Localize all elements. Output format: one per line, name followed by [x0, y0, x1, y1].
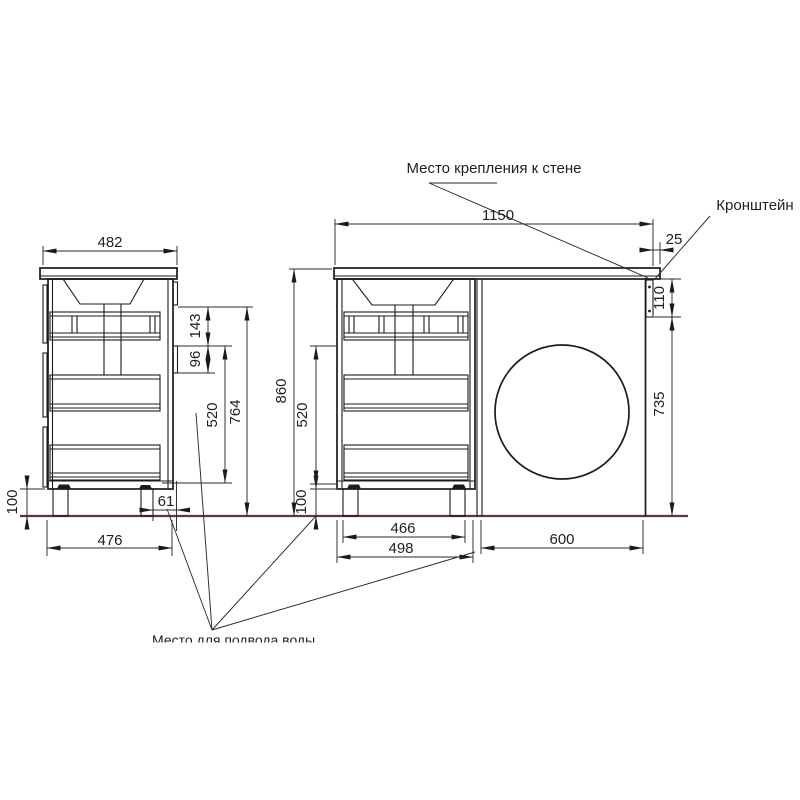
side-drawer-top — [50, 312, 160, 340]
front-sink-bowl — [353, 280, 453, 305]
bracket-label: Кронштейн — [716, 197, 793, 214]
side-cabinet-body — [48, 279, 173, 489]
dim-100-side: 100 — [4, 489, 21, 514]
dim-482: 482 — [97, 234, 122, 251]
side-drawer-bottom — [50, 445, 160, 480]
dim-860: 860 — [273, 378, 290, 403]
dim-520-front: 520 — [294, 402, 311, 427]
vanity-technical-drawing: 482 143 96 520 764 100 61 476 1150 25 11… — [0, 0, 800, 800]
dim-110: 110 — [651, 286, 668, 310]
front-view-dimensions — [289, 219, 681, 563]
front-drawer-middle — [344, 375, 468, 411]
dim-100-front: 100 — [293, 489, 310, 514]
side-foot — [141, 489, 153, 516]
front-view — [334, 268, 660, 516]
wall-mount-label: Место крепления к стене — [406, 160, 581, 177]
dim-466: 466 — [390, 520, 415, 537]
front-drawer-bottom — [344, 445, 468, 480]
side-view — [40, 268, 178, 516]
front-countertop — [334, 268, 660, 279]
dim-96: 96 — [187, 351, 204, 368]
dim-1150: 1150 — [482, 207, 514, 224]
side-front-edge-tab — [43, 285, 47, 343]
dim-735: 735 — [651, 391, 668, 416]
front-foot — [450, 489, 465, 516]
dim-600: 600 — [549, 531, 574, 548]
front-drawer-top — [344, 312, 468, 340]
dim-520-side: 520 — [204, 402, 221, 427]
side-countertop — [40, 268, 177, 279]
dim-61: 61 — [158, 493, 175, 510]
side-drawer-middle — [50, 375, 160, 411]
dim-476: 476 — [97, 532, 122, 549]
dim-498: 498 — [388, 540, 413, 557]
dim-25: 25 — [666, 231, 683, 248]
side-foot — [53, 489, 68, 516]
dim-143: 143 — [187, 313, 204, 338]
front-cabinet-body — [337, 279, 475, 489]
front-foot — [343, 489, 358, 516]
dim-764: 764 — [227, 399, 244, 424]
note-clip-mask — [138, 643, 348, 671]
washer-drum-circle — [495, 345, 629, 479]
side-sink-bowl — [63, 279, 144, 304]
